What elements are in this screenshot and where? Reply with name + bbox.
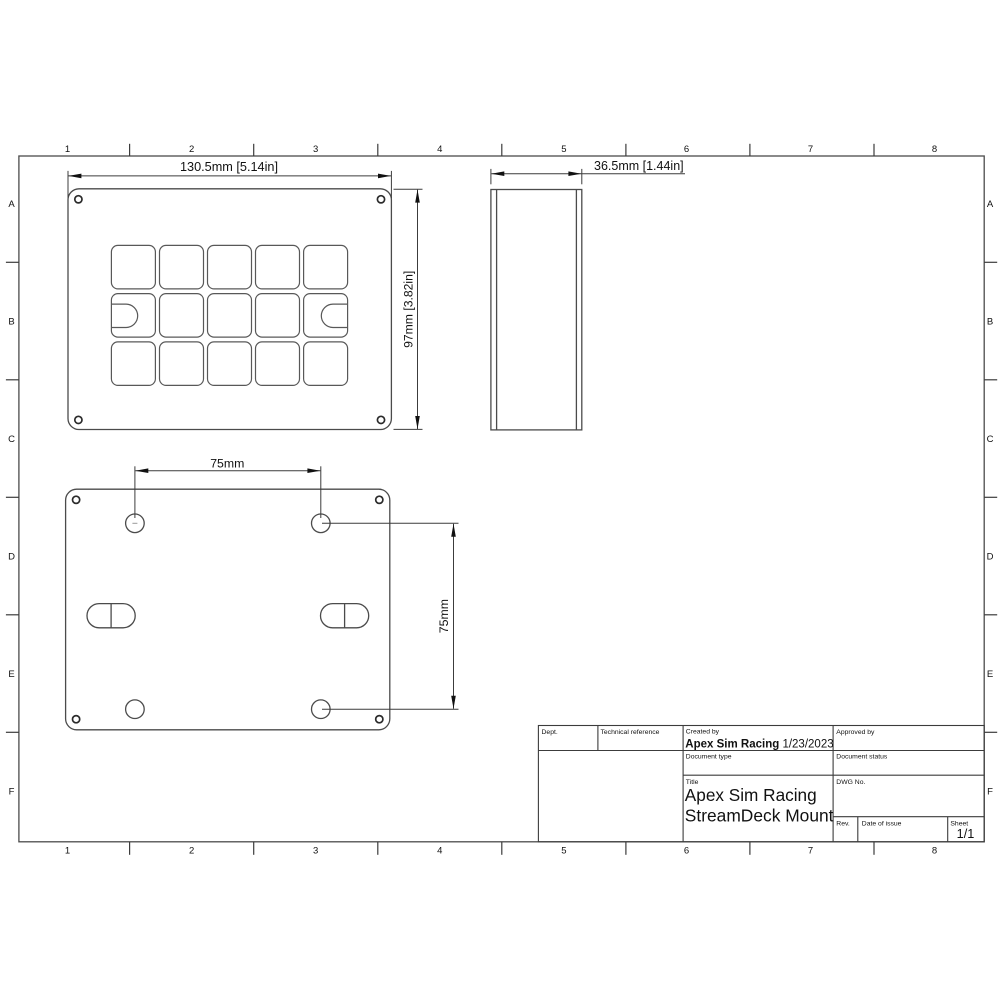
svg-text:7: 7 <box>808 144 813 155</box>
svg-text:8: 8 <box>932 845 937 856</box>
svg-text:B: B <box>987 317 993 328</box>
svg-text:E: E <box>8 669 14 680</box>
svg-text:1: 1 <box>65 845 70 856</box>
svg-text:36.5mm [1.44in]: 36.5mm [1.44in] <box>594 159 684 173</box>
svg-text:Apex Sim Racing: Apex Sim Racing <box>685 785 817 805</box>
svg-text:Date of issue: Date of issue <box>862 821 902 828</box>
svg-text:3: 3 <box>313 845 318 856</box>
svg-text:6: 6 <box>684 845 689 856</box>
svg-text:8: 8 <box>932 144 937 155</box>
svg-text:C: C <box>8 434 15 445</box>
svg-text:3: 3 <box>313 144 318 155</box>
svg-text:F: F <box>9 787 15 798</box>
svg-text:75mm: 75mm <box>437 599 451 633</box>
svg-text:Dept.: Dept. <box>542 729 558 736</box>
svg-text:5: 5 <box>561 144 566 155</box>
svg-text:Document status: Document status <box>836 754 888 761</box>
svg-text:97mm [3.82in]: 97mm [3.82in] <box>402 271 416 348</box>
svg-text:Technical reference: Technical reference <box>601 729 660 736</box>
svg-text:5: 5 <box>561 845 566 856</box>
svg-text:2: 2 <box>189 144 194 155</box>
svg-text:D: D <box>8 552 15 563</box>
svg-text:DWG No.: DWG No. <box>836 779 865 786</box>
svg-text:Created by: Created by <box>686 729 720 736</box>
svg-text:75mm: 75mm <box>210 457 244 471</box>
svg-text:B: B <box>8 317 14 328</box>
svg-text:7: 7 <box>808 845 813 856</box>
svg-text:F: F <box>987 787 993 798</box>
svg-text:D: D <box>987 552 994 563</box>
svg-text:StreamDeck Mount: StreamDeck Mount <box>685 806 834 826</box>
svg-text:Approved by: Approved by <box>836 729 875 736</box>
svg-text:Rev.: Rev. <box>836 821 850 828</box>
svg-text:E: E <box>987 669 993 680</box>
svg-text:4: 4 <box>437 845 442 856</box>
svg-text:1: 1 <box>65 144 70 155</box>
svg-text:2: 2 <box>189 845 194 856</box>
svg-text:4: 4 <box>437 144 442 155</box>
svg-text:130.5mm [5.14in]: 130.5mm [5.14in] <box>180 160 278 174</box>
svg-text:A: A <box>987 199 994 210</box>
svg-text:C: C <box>987 434 994 445</box>
svg-text:1/1: 1/1 <box>957 827 975 841</box>
svg-text:Apex Sim Racing 1/23/2023: Apex Sim Racing 1/23/2023 <box>685 739 833 751</box>
svg-text:A: A <box>8 199 15 210</box>
svg-text:6: 6 <box>684 144 689 155</box>
svg-text:Document type: Document type <box>686 754 732 761</box>
